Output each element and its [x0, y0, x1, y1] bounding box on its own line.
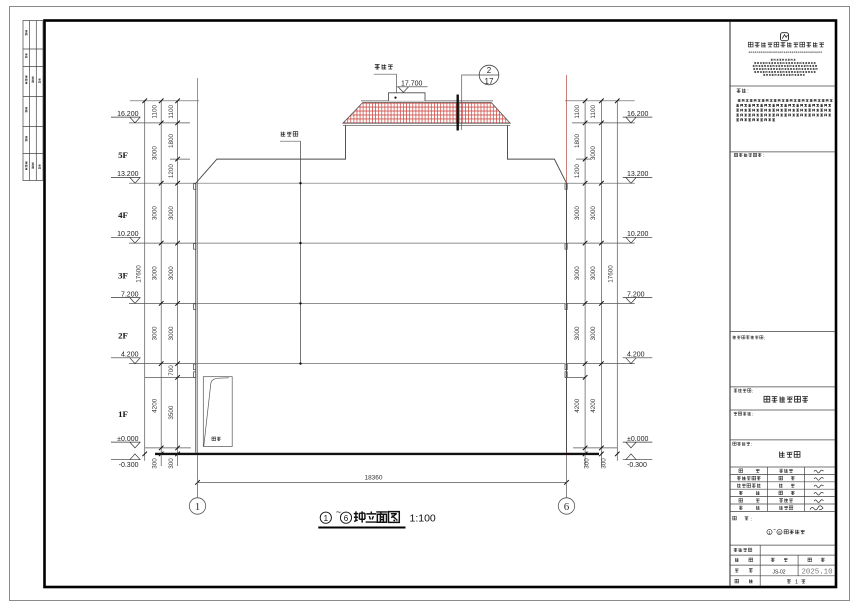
svg-text::: :	[752, 389, 753, 394]
svg-text:1800: 1800	[574, 134, 581, 149]
svg-text:6: 6	[564, 501, 570, 513]
svg-text:~: ~	[773, 528, 776, 534]
svg-text:4F: 4F	[118, 210, 128, 220]
svg-text:16.200: 16.200	[117, 111, 139, 118]
svg-text:1100: 1100	[168, 105, 175, 119]
svg-text:3F: 3F	[118, 271, 128, 281]
svg-text:3000: 3000	[152, 266, 159, 281]
svg-text:1200: 1200	[168, 164, 175, 179]
svg-text:1100: 1100	[590, 105, 597, 119]
svg-text:1100: 1100	[574, 105, 581, 119]
svg-text:1F: 1F	[118, 409, 128, 419]
svg-text:JS-02: JS-02	[772, 569, 785, 575]
svg-text:-0.300: -0.300	[627, 462, 647, 469]
svg-text:3000: 3000	[152, 146, 159, 161]
svg-text:2F: 2F	[118, 331, 128, 341]
svg-text:6: 6	[344, 514, 349, 523]
svg-text:±0.000: ±0.000	[117, 436, 138, 443]
svg-text:±0.000: ±0.000	[627, 436, 648, 443]
svg-text::: :	[764, 336, 765, 341]
svg-text:17.700: 17.700	[401, 80, 423, 87]
svg-text:17600: 17600	[607, 265, 614, 283]
svg-text:3000: 3000	[590, 146, 597, 161]
svg-text:-0.300: -0.300	[119, 462, 139, 469]
svg-text:7.200: 7.200	[627, 291, 645, 298]
svg-text::: :	[763, 153, 764, 158]
svg-text:13.200: 13.200	[117, 171, 139, 178]
svg-text:13.200: 13.200	[627, 171, 649, 178]
svg-text:4200: 4200	[574, 398, 581, 413]
svg-text:4200: 4200	[590, 398, 597, 413]
svg-text:4200: 4200	[152, 398, 159, 413]
svg-text::: :	[747, 89, 748, 95]
svg-text:1200: 1200	[574, 164, 581, 179]
svg-text:~: ~	[336, 507, 341, 517]
svg-text:1100: 1100	[152, 105, 159, 119]
svg-text:16.200: 16.200	[627, 111, 649, 118]
svg-text:4.200: 4.200	[121, 352, 139, 359]
svg-text:7.200: 7.200	[121, 291, 139, 298]
svg-text:3000: 3000	[168, 326, 175, 341]
svg-text:3000: 3000	[590, 266, 597, 281]
svg-text:3000: 3000	[168, 206, 175, 221]
svg-text:1: 1	[195, 501, 201, 513]
svg-text::: :	[751, 442, 752, 447]
svg-text:10.200: 10.200	[627, 231, 649, 238]
svg-text:3000: 3000	[168, 266, 175, 281]
svg-text:3500: 3500	[168, 405, 175, 420]
svg-text:10.200: 10.200	[117, 231, 139, 238]
svg-text:3000: 3000	[152, 326, 159, 341]
svg-text:17600: 17600	[135, 265, 142, 283]
svg-text:300: 300	[152, 458, 159, 469]
svg-text:1: 1	[324, 514, 329, 523]
svg-text::: :	[752, 412, 753, 417]
svg-text:4.200: 4.200	[627, 352, 645, 359]
svg-text:300: 300	[601, 458, 608, 469]
svg-text:300: 300	[584, 458, 591, 469]
svg-text:2025.10: 2025.10	[801, 569, 832, 577]
svg-text:2: 2	[487, 66, 492, 75]
svg-text::: :	[751, 517, 752, 522]
svg-text:18360: 18360	[364, 475, 382, 482]
svg-text:3000: 3000	[590, 206, 597, 221]
svg-text:3000: 3000	[574, 326, 581, 341]
svg-text:3000: 3000	[574, 206, 581, 221]
svg-text:17: 17	[485, 77, 494, 86]
svg-text:5F: 5F	[118, 150, 128, 160]
svg-text:3000: 3000	[574, 266, 581, 281]
svg-text:1:100: 1:100	[410, 513, 436, 525]
svg-text:1800: 1800	[168, 134, 175, 149]
svg-text:3000: 3000	[590, 326, 597, 341]
svg-text:300: 300	[168, 458, 175, 469]
svg-text:700: 700	[168, 365, 175, 376]
svg-text:1: 1	[795, 580, 798, 586]
svg-text:3000: 3000	[152, 206, 159, 221]
